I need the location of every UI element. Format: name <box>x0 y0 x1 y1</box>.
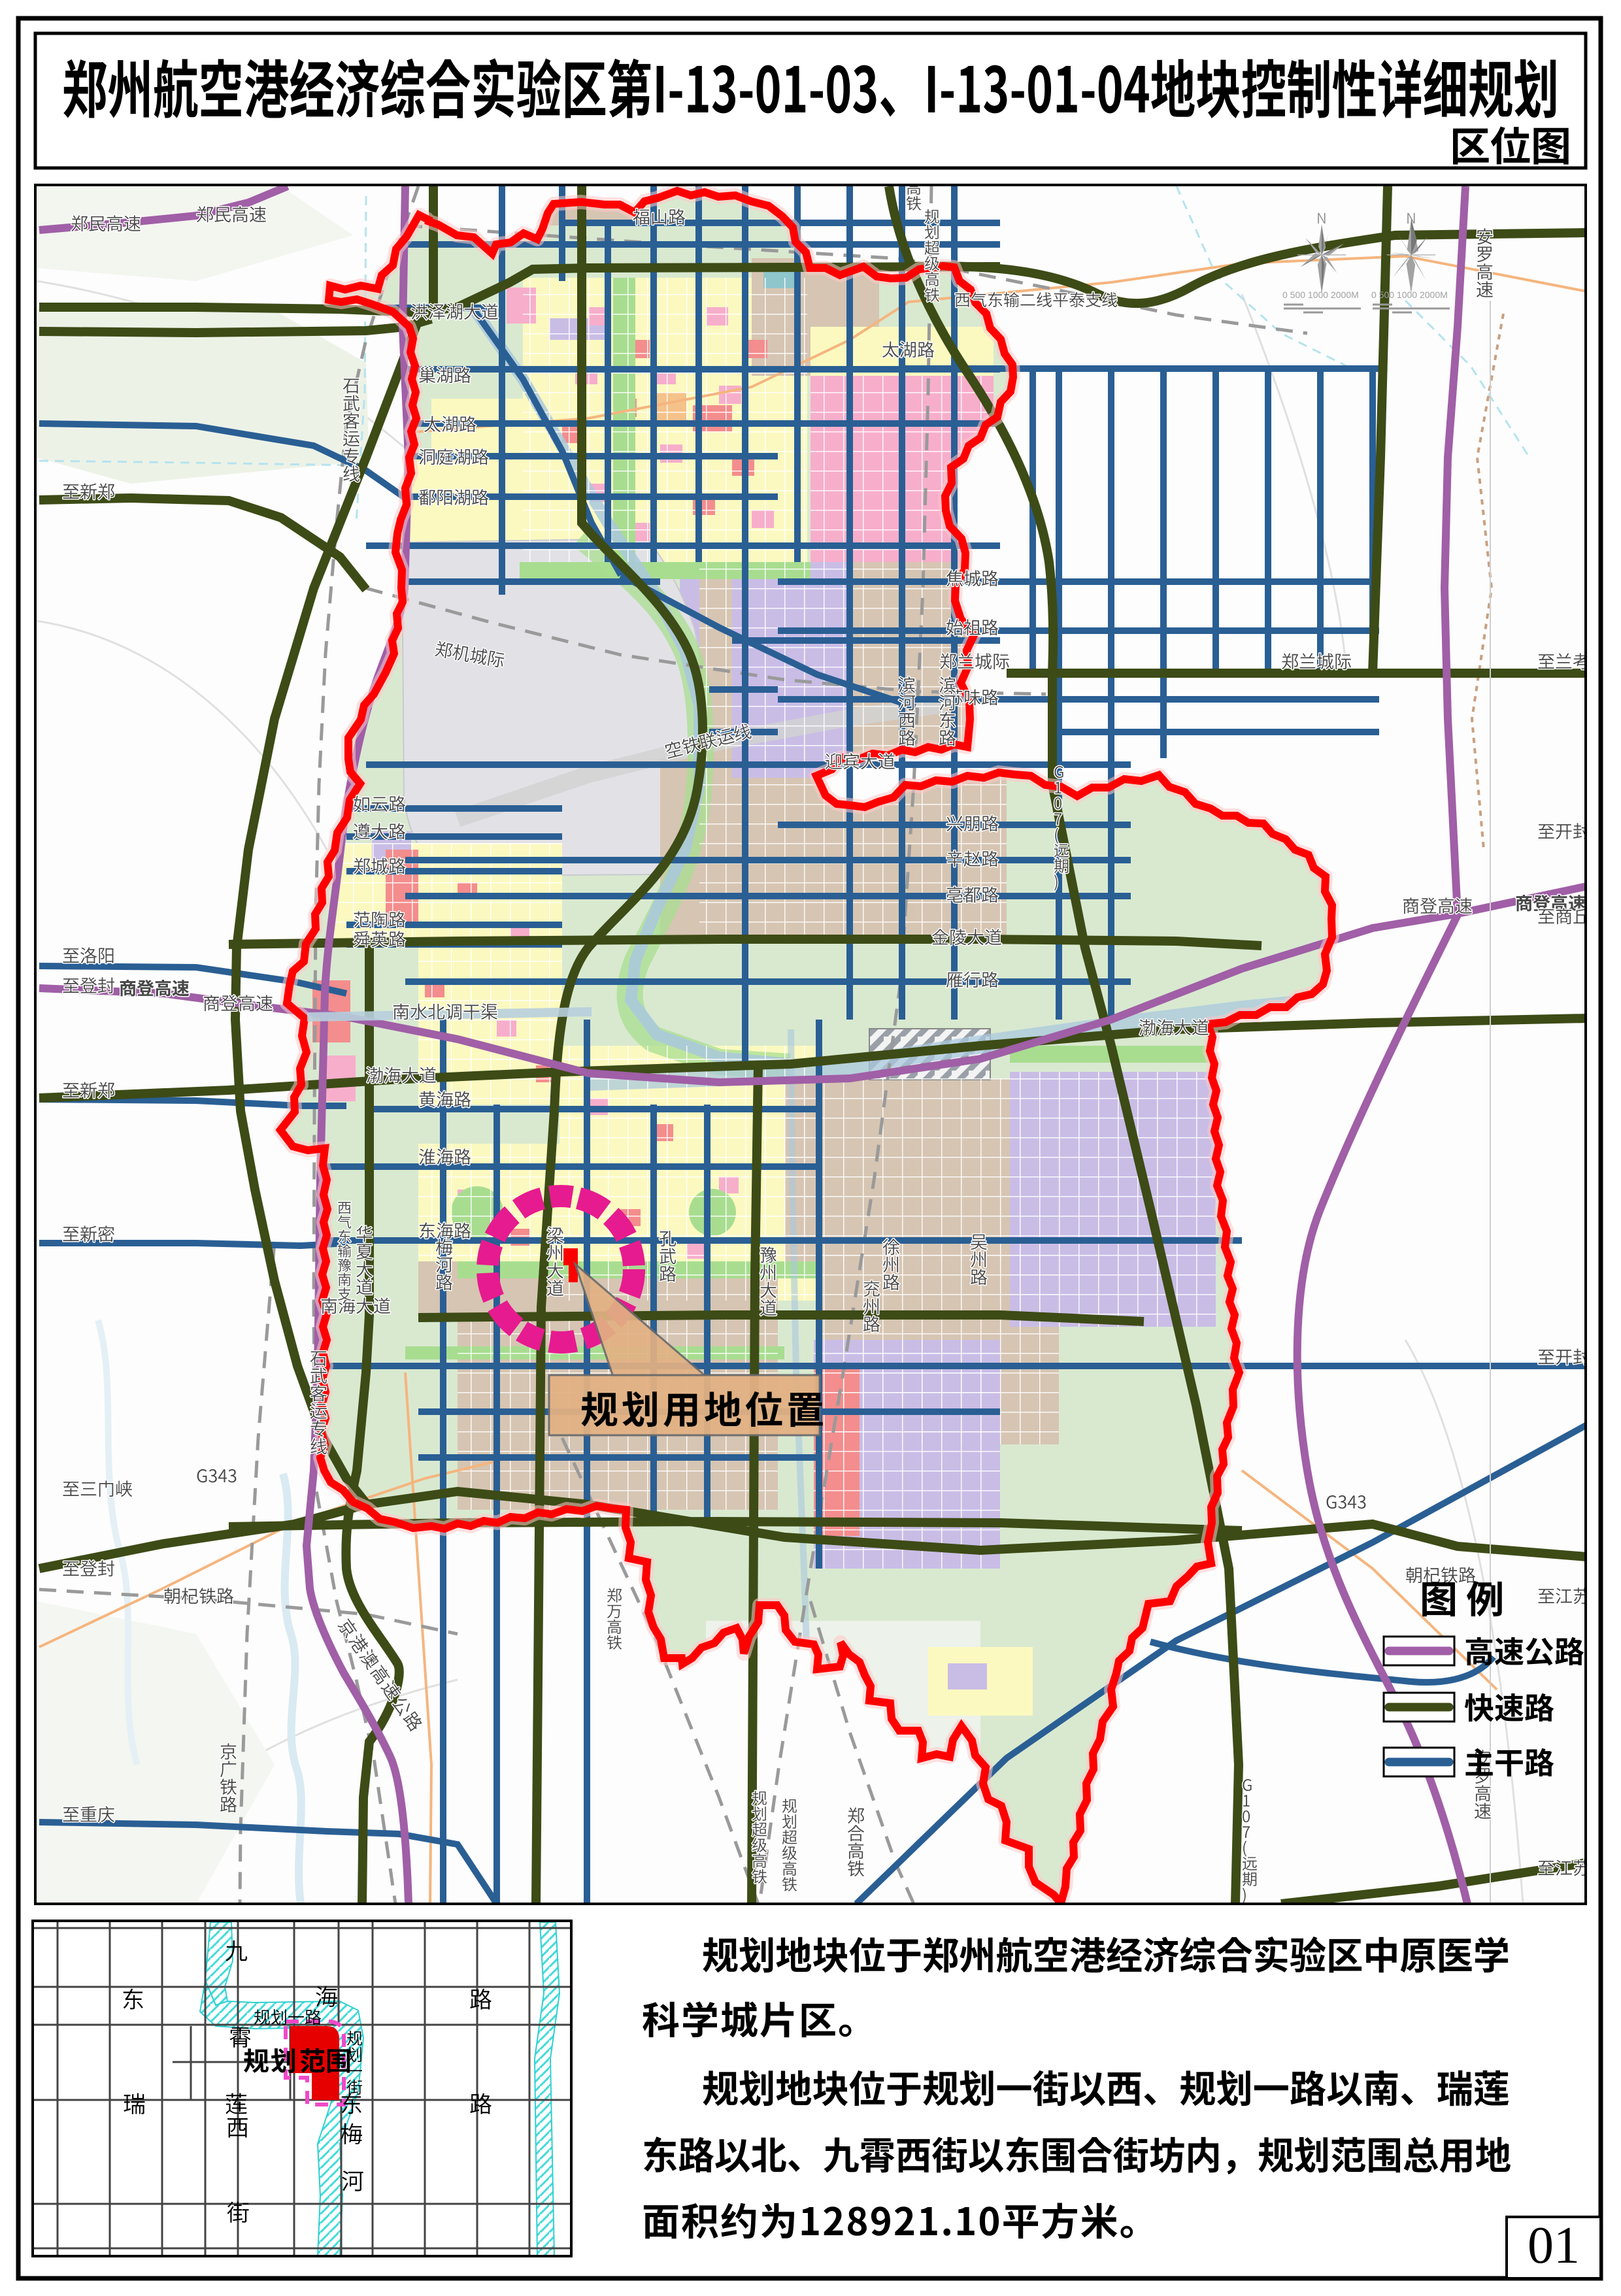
svg-text:0 500 1000 2000M: 0 500 1000 2000M <box>1282 290 1359 300</box>
svg-text:01: 01 <box>1528 2217 1580 2274</box>
svg-text:0 500 1000 2000M: 0 500 1000 2000M <box>1371 290 1448 300</box>
